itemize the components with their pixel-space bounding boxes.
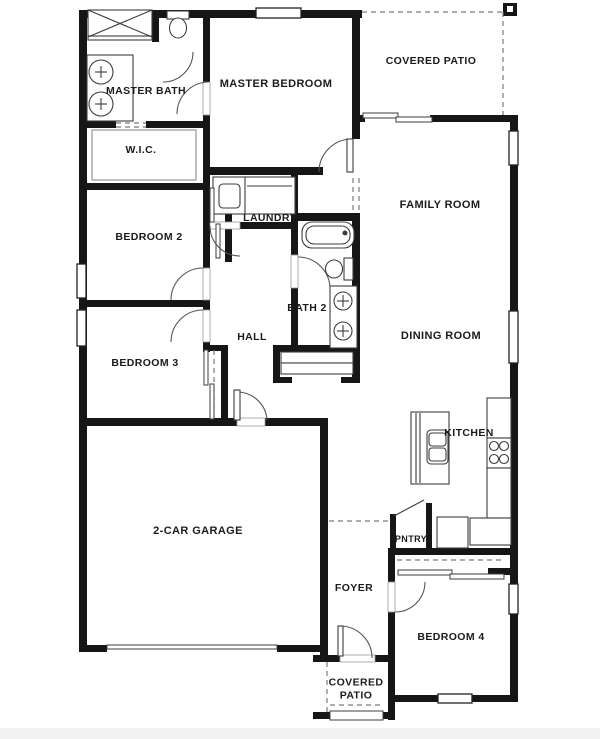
linen-shelf: [281, 352, 353, 363]
slider-panel: [330, 711, 383, 720]
refrigerator: [437, 517, 468, 548]
room-label-covered-patio-bottom: COVEREDPATIO: [329, 677, 384, 702]
room-label-bath-2: BATH 2: [287, 302, 327, 314]
room-label-master-bath: MASTER BATH: [106, 85, 186, 97]
room-label-bedroom-3: BEDROOM 3: [111, 357, 178, 369]
wall: [388, 655, 395, 720]
door-leaf: [234, 390, 240, 420]
door-swing-arc: [171, 310, 203, 342]
window: [509, 311, 518, 363]
door-leaf: [347, 139, 353, 172]
wall: [273, 377, 292, 383]
wall: [203, 167, 323, 175]
wall: [383, 712, 395, 719]
wall: [152, 10, 159, 42]
wall: [203, 10, 210, 82]
door-opening: [388, 582, 395, 612]
wall: [221, 345, 228, 423]
door-opening: [291, 255, 298, 288]
door-swing-arc: [298, 257, 330, 289]
door-leaf: [338, 626, 343, 656]
door-swing-arc: [237, 392, 267, 420]
floor-plan-drawing: MASTER BATHMASTER BEDROOMCOVERED PATIOW.…: [0, 0, 600, 739]
sink-basin: [429, 448, 446, 461]
burner-icon: [500, 455, 509, 464]
door-opening: [203, 82, 210, 115]
door-swing-arc: [395, 582, 425, 612]
room-label-master-bedroom: MASTER BEDROOM: [220, 78, 333, 90]
shower-door: [88, 36, 152, 40]
slider-panel: [398, 570, 452, 575]
wall: [79, 300, 203, 307]
window: [77, 264, 86, 298]
door-opening: [210, 222, 240, 229]
door-swing-arc: [163, 52, 193, 82]
linen-shelf: [281, 363, 353, 374]
page-edge-band: [0, 728, 600, 739]
wc-toilet-bowl: [170, 18, 187, 38]
wall: [472, 695, 516, 702]
burner-icon: [490, 455, 499, 464]
fixture-line: [394, 500, 424, 516]
window: [509, 584, 518, 614]
room-label-dining-room: DINING ROOM: [401, 330, 481, 342]
room-label-bedroom-4: BEDROOM 4: [417, 631, 484, 643]
room-label-bedroom-2: BEDROOM 2: [115, 231, 182, 243]
window: [509, 131, 518, 165]
kitchen-counter-lower: [487, 468, 511, 518]
room-label-laundry: LAUNDRY: [243, 212, 297, 224]
floor-plan: MASTER BATHMASTER BEDROOMCOVERED PATIOW.…: [0, 0, 600, 739]
slider-panel: [363, 113, 398, 118]
wall: [203, 190, 210, 268]
washer-drum: [219, 184, 240, 208]
wall: [313, 712, 330, 719]
slider-panel: [210, 384, 214, 419]
window: [77, 310, 86, 346]
door-opening: [203, 268, 210, 300]
kitchen-counter-foot: [470, 518, 511, 545]
door-swing-arc: [340, 626, 372, 658]
door-opening: [237, 418, 265, 426]
slider-panel: [216, 224, 220, 258]
window: [438, 694, 472, 703]
wall: [430, 115, 518, 122]
room-label-pantry: PNTRY: [395, 534, 427, 544]
bath2-toilet-bowl: [326, 260, 343, 278]
room-label-kitchen: KITCHEN: [444, 427, 493, 439]
room-label-garage: 2-CAR GARAGE: [153, 525, 243, 537]
wall: [291, 223, 298, 255]
room-label-wic: W.I.C.: [126, 144, 157, 156]
patio-post-dot: [507, 6, 513, 12]
slider-panel: [107, 645, 277, 649]
wall: [388, 548, 516, 555]
room-label-family-room: FAMILY ROOM: [400, 199, 481, 211]
wall: [79, 645, 107, 652]
wall: [388, 695, 438, 702]
window: [256, 8, 301, 18]
wall: [291, 288, 298, 345]
door-opening: [203, 310, 210, 342]
wall: [146, 121, 205, 128]
room-label-covered-patio-top: COVERED PATIO: [386, 55, 477, 67]
room-label-hall: HALL: [237, 331, 267, 343]
wall: [388, 612, 395, 655]
wall: [79, 121, 116, 128]
wall: [203, 300, 210, 310]
wall: [265, 418, 328, 426]
room-label-foyer: FOYER: [335, 582, 373, 594]
wall: [298, 213, 360, 221]
wall: [320, 426, 328, 660]
wall: [277, 645, 320, 652]
burner-icon: [490, 442, 499, 451]
slider-panel: [204, 350, 208, 385]
bath2-toilet-tank: [344, 258, 353, 280]
wall: [79, 183, 210, 190]
door-swing-arc: [171, 268, 203, 300]
slider-panel: [210, 188, 214, 222]
burner-icon: [500, 442, 509, 451]
wall: [313, 655, 340, 662]
wall: [388, 555, 395, 582]
slider-panel: [450, 574, 504, 579]
tub-inner: [306, 226, 350, 244]
tub-faucet-icon: [343, 231, 347, 235]
slider-panel: [396, 117, 432, 122]
wall: [341, 377, 360, 383]
door-opening: [340, 655, 375, 662]
wall: [390, 514, 396, 550]
